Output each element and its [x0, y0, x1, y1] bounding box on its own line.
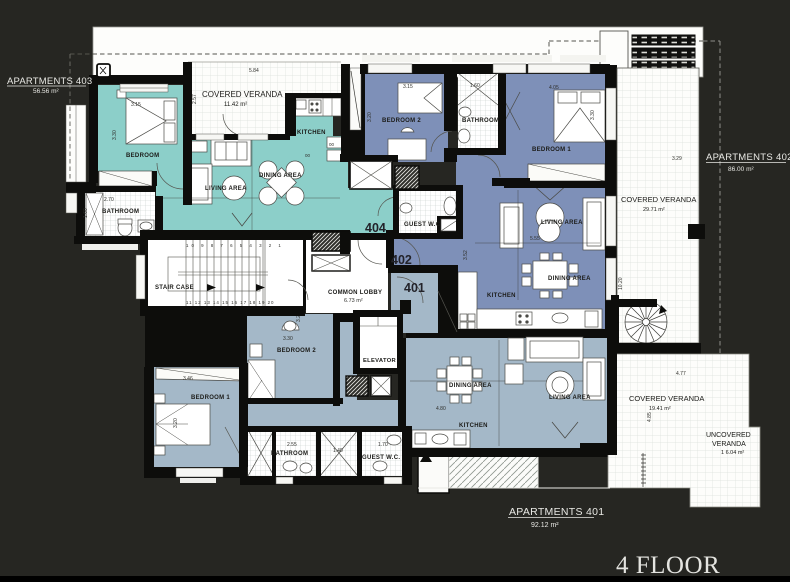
svg-text:GUEST W.C: GUEST W.C: [404, 222, 441, 228]
svg-text:APARTMENTS 403: APARTMENTS 403: [7, 76, 92, 87]
svg-text:BATHROOM: BATHROOM: [102, 209, 139, 215]
svg-text:APARTMENTS 401: APARTMENTS 401: [509, 506, 604, 518]
svg-text:BEDROOM 1: BEDROOM 1: [191, 395, 230, 401]
svg-text:4.77: 4.77: [676, 371, 686, 377]
svg-text:29.71 m²: 29.71 m²: [643, 207, 665, 213]
svg-text:DINING AREA: DINING AREA: [548, 276, 591, 282]
svg-text:4.80: 4.80: [436, 406, 446, 412]
svg-text:APARTMENTS 402: APARTMENTS 402: [706, 152, 790, 163]
svg-text:92.12 m²: 92.12 m²: [531, 522, 559, 529]
svg-text:DINING AREA: DINING AREA: [449, 383, 492, 389]
svg-text:LIVING AREA: LIVING AREA: [549, 395, 591, 401]
svg-text:00: 00: [305, 153, 311, 158]
svg-text:401: 401: [404, 281, 425, 295]
svg-text:6.73 m²: 6.73 m²: [344, 298, 363, 304]
svg-text:402: 402: [391, 253, 412, 267]
svg-text:3.46: 3.46: [183, 376, 193, 382]
svg-text:3.30: 3.30: [283, 336, 293, 342]
svg-text:3.15: 3.15: [403, 84, 413, 90]
svg-text:00: 00: [329, 142, 335, 147]
svg-text:KITCHEN: KITCHEN: [487, 293, 516, 299]
svg-text:LIVING AREA: LIVING AREA: [205, 186, 247, 192]
svg-text:STAIR CASE: STAIR CASE: [155, 285, 194, 291]
svg-text:GUEST W.C.: GUEST W.C.: [362, 455, 400, 461]
svg-text:86.00 m²: 86.00 m²: [728, 166, 754, 173]
svg-text:ELEVATOR: ELEVATOR: [363, 358, 397, 364]
svg-text:VERANDA: VERANDA: [712, 441, 746, 448]
svg-text:3.30: 3.30: [590, 110, 596, 120]
svg-text:BEDROOM: BEDROOM: [126, 153, 159, 159]
svg-text:BEDROOM 2: BEDROOM 2: [277, 348, 316, 354]
svg-text:5.84: 5.84: [249, 68, 259, 74]
svg-text:LIVING AREA: LIVING AREA: [541, 220, 583, 226]
svg-text:11.42 m²: 11.42 m²: [224, 102, 247, 108]
svg-text:2.55: 2.55: [287, 442, 297, 448]
svg-text:BEDROOM 1: BEDROOM 1: [532, 147, 571, 153]
svg-text:1 6.04 m²: 1 6.04 m²: [721, 450, 744, 456]
svg-text:BATHROOM: BATHROOM: [462, 118, 499, 124]
svg-text:3.15: 3.15: [131, 102, 141, 108]
svg-text:4.05: 4.05: [549, 85, 559, 91]
svg-text:10.20: 10.20: [618, 277, 624, 290]
svg-text:2.70: 2.70: [104, 197, 114, 203]
svg-text:DINING AREA: DINING AREA: [259, 173, 302, 179]
svg-text:COVERED VERANDA: COVERED VERANDA: [202, 90, 283, 99]
svg-text:COVERED VERANDA: COVERED VERANDA: [621, 195, 696, 204]
svg-text:COMMON LOBBY: COMMON LOBBY: [328, 290, 382, 296]
svg-text:3.20: 3.20: [367, 112, 373, 122]
svg-text:1.60: 1.60: [470, 83, 480, 89]
svg-text:COVERED VERANDA: COVERED VERANDA: [629, 394, 704, 403]
svg-text:11 12 13 14 15 16 17 18 19 20: 11 12 13 14 15 16 17 18 19 20: [186, 300, 275, 305]
svg-text:KITCHEN: KITCHEN: [297, 130, 326, 136]
svg-text:UNCOVERED: UNCOVERED: [706, 432, 751, 439]
svg-text:56.56 m²: 56.56 m²: [33, 88, 59, 95]
svg-text:2.57: 2.57: [192, 94, 198, 104]
svg-text:4.85: 4.85: [647, 412, 653, 422]
svg-text:5.55: 5.55: [530, 236, 540, 242]
svg-text:KITCHEN: KITCHEN: [459, 423, 488, 429]
svg-text:404: 404: [365, 221, 386, 235]
svg-text:3.30: 3.30: [112, 130, 118, 140]
svg-text:3.52: 3.52: [463, 250, 469, 260]
svg-text:4 FLOOR: 4 FLOOR: [616, 552, 720, 579]
svg-text:3.29: 3.29: [672, 156, 682, 162]
svg-text:3.20: 3.20: [173, 418, 179, 428]
svg-text:1.70: 1.70: [378, 442, 388, 448]
svg-text:1.40: 1.40: [333, 448, 343, 454]
svg-text:BEDROOM 2: BEDROOM 2: [382, 118, 421, 124]
svg-text:BATHROOM: BATHROOM: [271, 451, 308, 457]
svg-text:10 9 8 7 6 5 4 3 2 1: 10 9 8 7 6 5 4 3 2 1: [186, 243, 284, 248]
svg-text:19.41 m²: 19.41 m²: [649, 406, 671, 412]
svg-text:1.60: 1.60: [83, 208, 89, 218]
